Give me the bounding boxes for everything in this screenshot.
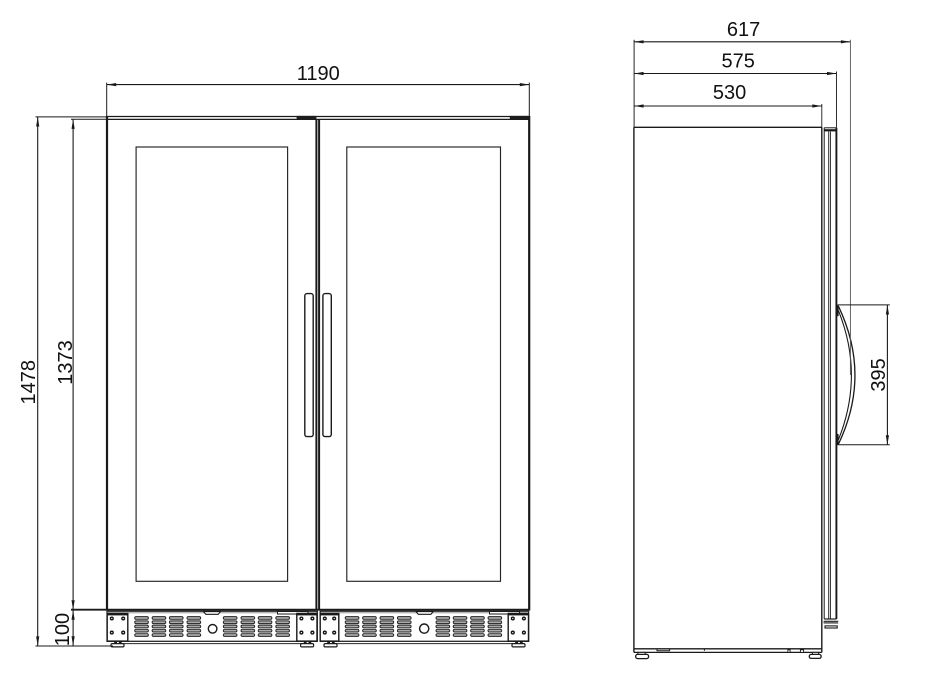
svg-text:1478: 1478 [18,360,40,405]
svg-text:100: 100 [52,613,74,646]
svg-text:575: 575 [722,50,755,72]
svg-text:530: 530 [713,82,746,104]
svg-text:617: 617 [727,19,760,41]
svg-text:1190: 1190 [297,63,340,85]
svg-text:395: 395 [868,358,890,391]
